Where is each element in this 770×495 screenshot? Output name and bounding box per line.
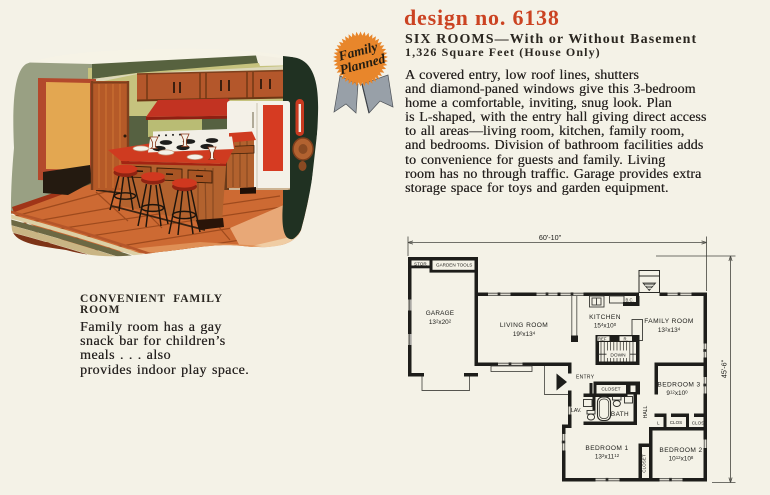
svg-text:BATH: BATH xyxy=(611,411,629,418)
svg-text:GARDEN TOOLS: GARDEN TOOLS xyxy=(436,263,472,268)
svg-text:190x134: 190x134 xyxy=(513,330,536,338)
svg-text:132x134: 132x134 xyxy=(658,326,681,334)
svg-text:HALL: HALL xyxy=(643,406,649,419)
svg-text:132x1112: 132x1112 xyxy=(595,453,620,461)
svg-text:CLOSET: CLOSET xyxy=(642,454,647,473)
svg-text:1012x108: 1012x108 xyxy=(669,455,694,463)
svg-text:STOR: STOR xyxy=(414,261,427,266)
svg-text:DOWN: DOWN xyxy=(610,353,626,359)
svg-text:ENTRY: ENTRY xyxy=(576,375,595,381)
svg-text:REF: REF xyxy=(598,336,607,341)
svg-text:CLOS: CLOS xyxy=(670,420,683,425)
svg-text:GARAGE: GARAGE xyxy=(426,310,455,317)
svg-text:60'-10": 60'-10" xyxy=(539,233,562,242)
svg-text:CLOSET: CLOSET xyxy=(601,387,620,393)
svg-text:B.C.: B.C. xyxy=(626,298,634,303)
svg-text:BEDROOM 3: BEDROOM 3 xyxy=(657,382,700,389)
svg-text:L: L xyxy=(657,421,660,426)
svg-text:912x100: 912x100 xyxy=(666,389,688,397)
svg-text:BEDROOM 1: BEDROOM 1 xyxy=(585,445,628,452)
svg-text:BEDROOM 2: BEDROOM 2 xyxy=(659,447,702,454)
svg-text:45'-6": 45'-6" xyxy=(720,359,729,378)
svg-text:LIVING ROOM: LIVING ROOM xyxy=(500,322,548,329)
svg-text:154x100: 154x100 xyxy=(594,322,617,330)
svg-text:R.: R. xyxy=(624,336,628,341)
svg-text:LAV.: LAV. xyxy=(571,408,581,414)
svg-text:FAMILY ROOM: FAMILY ROOM xyxy=(644,318,694,325)
svg-text:KITCHEN: KITCHEN xyxy=(589,314,621,321)
svg-text:CLOS: CLOS xyxy=(692,421,705,426)
svg-text:132x202: 132x202 xyxy=(429,318,452,326)
